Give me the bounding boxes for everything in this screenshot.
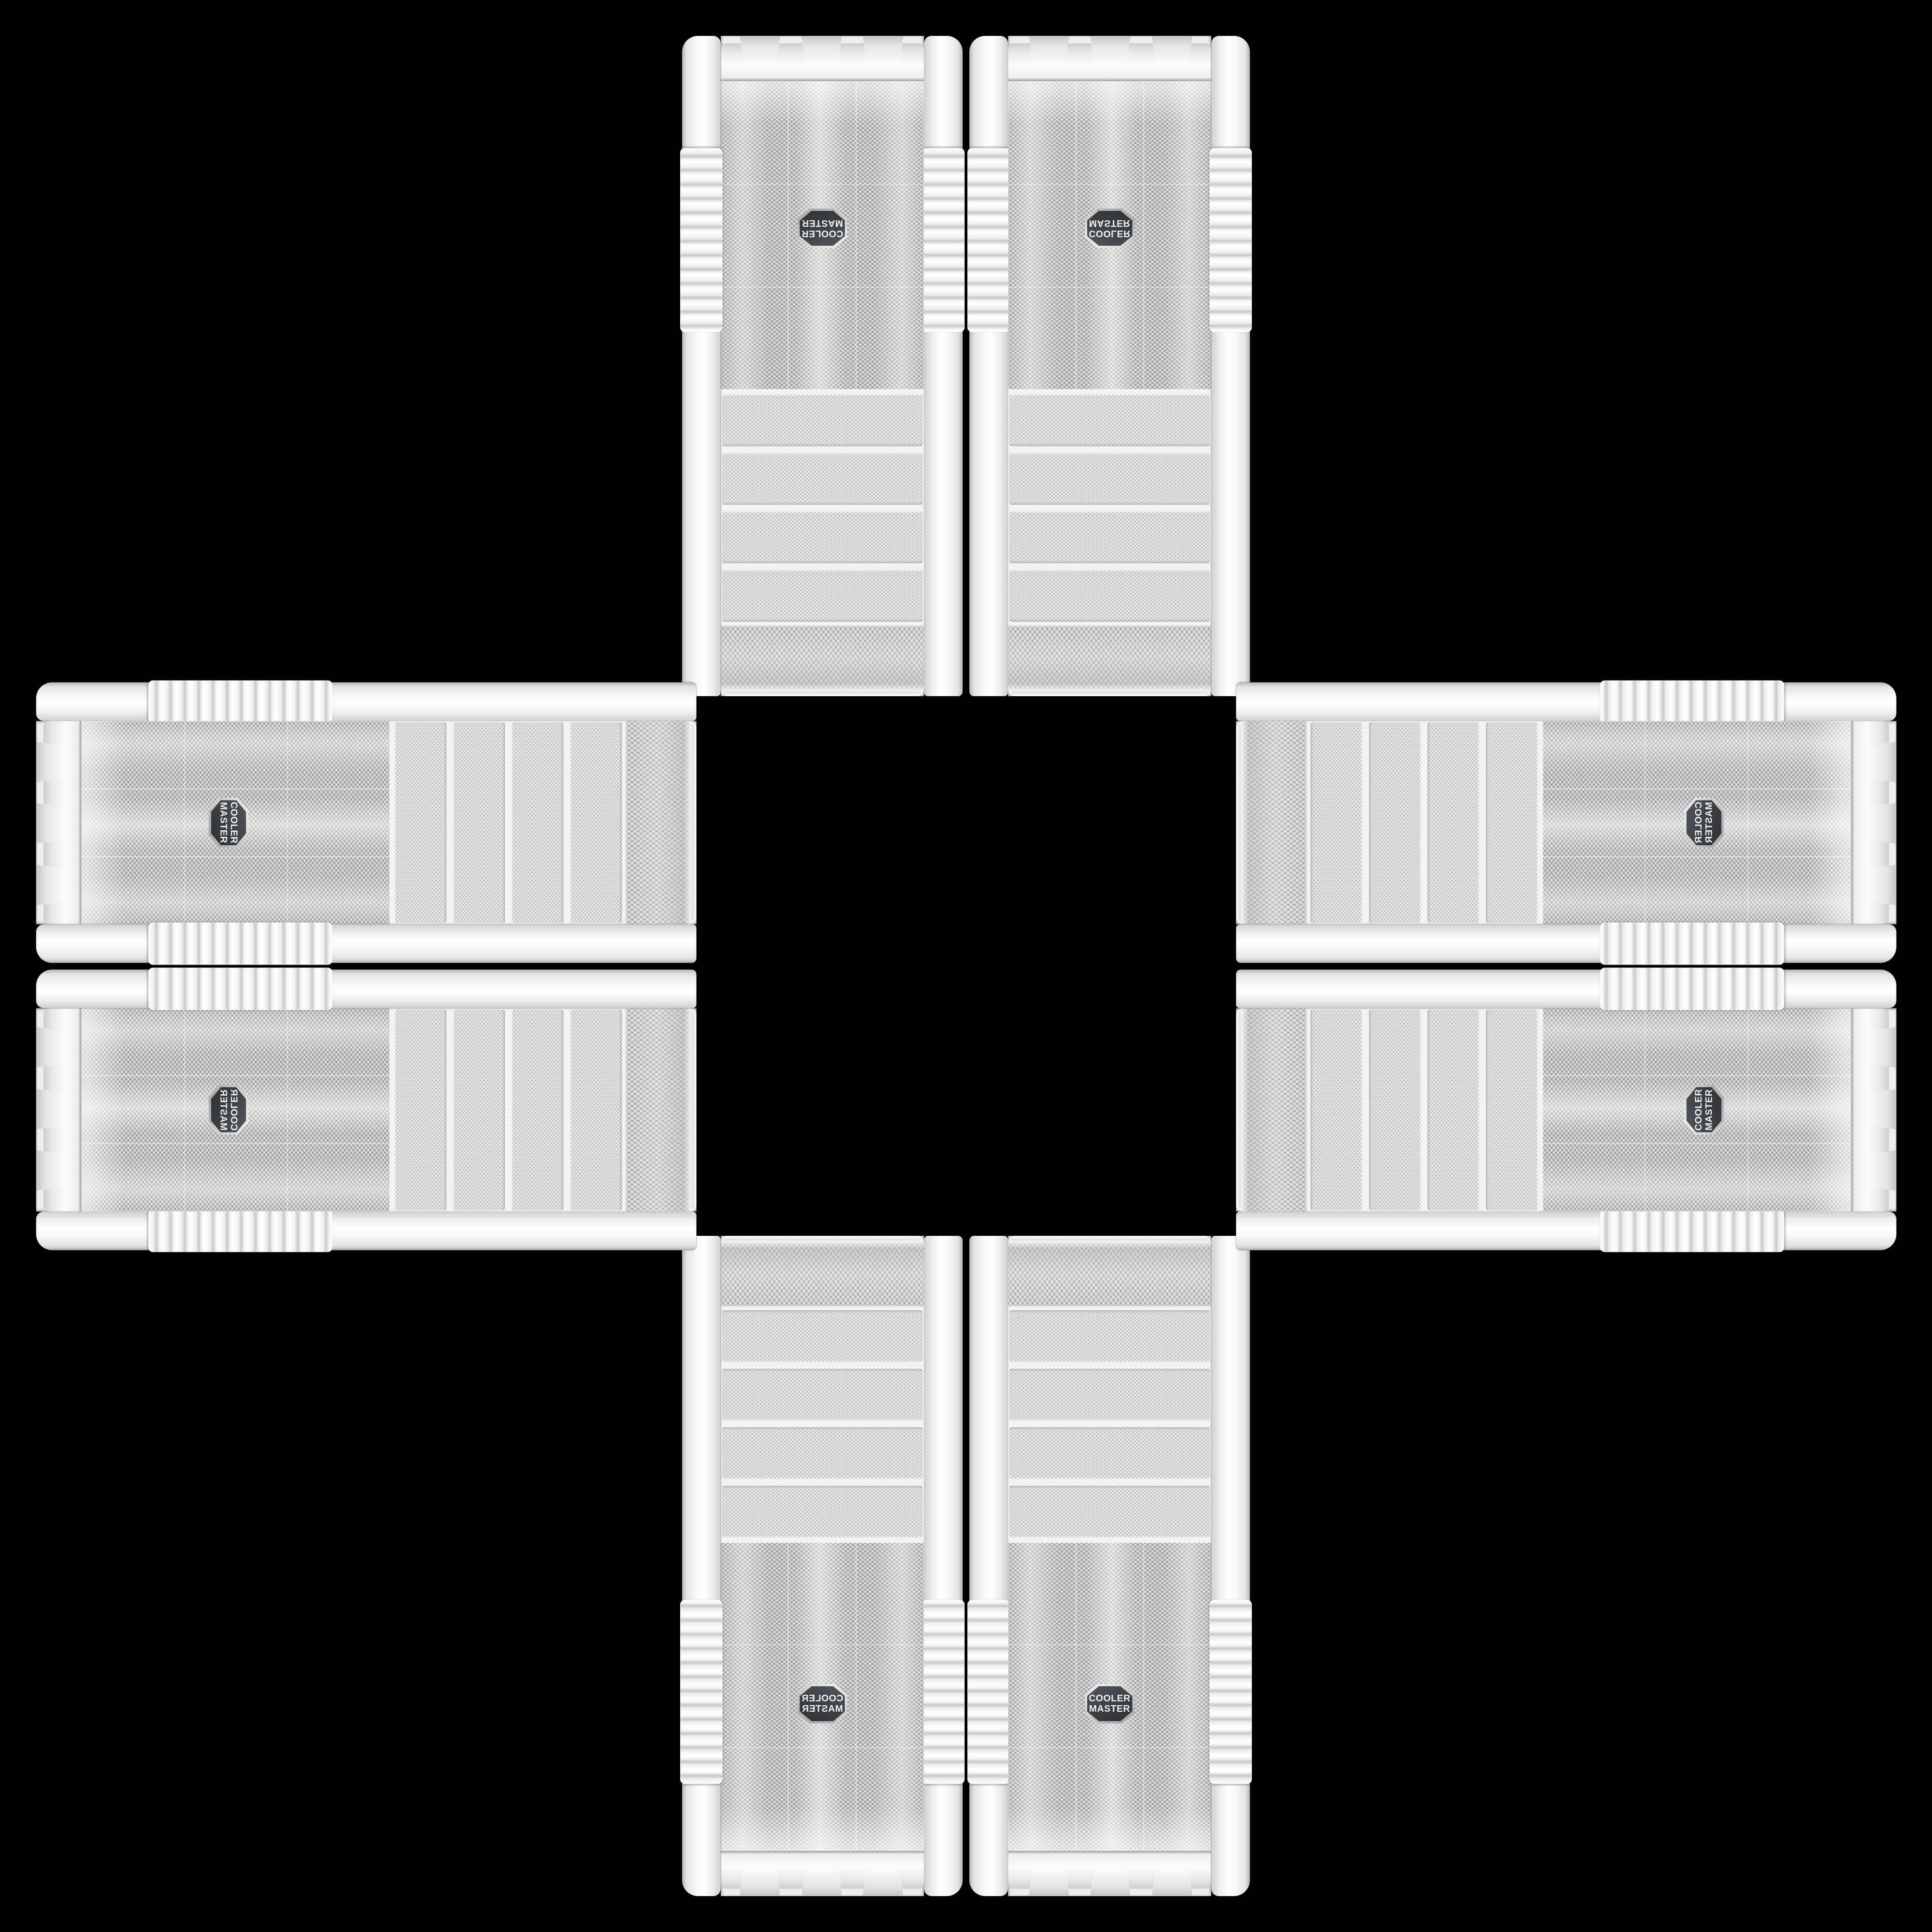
- drive-bay-strip: [452, 1009, 505, 1210]
- case-front-panel-bottom-left: COOLER MASTER: [682, 1236, 963, 1896]
- grip-ribs-left: [967, 148, 1010, 332]
- side-rail-right: [1211, 36, 1250, 696]
- side-rail-left: [1236, 682, 1896, 721]
- mesh-roll-edge: [1008, 626, 1211, 696]
- grip-ribs-right: [680, 148, 723, 332]
- badge-text-line2: MASTER: [218, 1089, 228, 1130]
- cooler-master-badge: COOLER MASTER: [1684, 798, 1724, 848]
- foot-tab: [1869, 741, 1896, 782]
- drive-bay-strip: [1009, 452, 1210, 505]
- side-rail-right: [1236, 924, 1896, 963]
- badge-text-line2: MASTER: [1704, 1089, 1714, 1130]
- cooler-master-badge: COOLER MASTER: [798, 1684, 848, 1724]
- cooler-master-badge-face: COOLER MASTER: [211, 800, 246, 845]
- mesh-roll-edge: [1236, 1008, 1306, 1211]
- front-bezel: COOLER MASTER: [1236, 1008, 1896, 1211]
- mesh-roll-edge: [626, 721, 696, 924]
- badge-text-line1: COOLER: [229, 801, 239, 843]
- cooler-master-badge-face: COOLER MASTER: [800, 211, 845, 246]
- main-mesh-area: COOLER MASTER: [721, 1543, 924, 1851]
- grip-ribs-right: [1209, 1600, 1252, 1784]
- front-bezel: COOLER MASTER: [721, 1236, 924, 1896]
- grip-ribs-right: [680, 1600, 723, 1784]
- front-bezel: COOLER MASTER: [36, 1008, 696, 1211]
- badge-text-line1: COOLER: [1089, 1694, 1131, 1704]
- drive-bay-strip: [722, 1310, 923, 1363]
- drive-bay-strip: [722, 1486, 923, 1538]
- case-front-panel-left-bottom: COOLER MASTER: [36, 969, 696, 1250]
- side-rail-left: [1236, 1211, 1896, 1250]
- foot-tab: [36, 741, 63, 782]
- drive-bay-strip: [569, 1009, 622, 1210]
- grip-ribs-right: [148, 967, 332, 1010]
- mesh-roll-edge: [1236, 721, 1306, 924]
- drive-bay-strip: [452, 722, 505, 923]
- grip-ribs-left: [148, 1209, 332, 1252]
- drive-bay-strip: [1009, 511, 1210, 563]
- drive-bay-strip: [511, 1009, 563, 1210]
- outer-cap: [1008, 36, 1211, 81]
- foot-tab: [36, 1150, 63, 1191]
- side-rail-right: [682, 36, 721, 696]
- drive-bay-section: [721, 389, 924, 626]
- front-bezel: COOLER MASTER: [721, 36, 924, 696]
- case-front-panel-right-bottom: COOLER MASTER: [1236, 969, 1896, 1250]
- badge-text-line2: MASTER: [218, 802, 228, 843]
- foot-tab: [740, 1869, 780, 1896]
- outer-cap: [721, 36, 924, 81]
- front-bezel: COOLER MASTER: [1008, 1236, 1211, 1896]
- cooler-master-badge-face: COOLER MASTER: [1686, 800, 1721, 845]
- cooler-master-badge-face: COOLER MASTER: [1087, 211, 1133, 246]
- side-rail-left: [924, 36, 963, 696]
- cooler-master-badge-face: COOLER MASTER: [1686, 1087, 1721, 1133]
- drive-bay-strip: [1369, 722, 1421, 923]
- drive-bay-strip: [1427, 722, 1480, 923]
- main-mesh-area: COOLER MASTER: [1008, 81, 1211, 389]
- cooler-master-badge-face: COOLER MASTER: [211, 1087, 246, 1133]
- grip-ribs-left: [922, 148, 965, 332]
- drive-bay-strip: [722, 1427, 923, 1480]
- foot-tab: [1090, 1869, 1131, 1896]
- drive-bay-strip: [569, 722, 622, 923]
- cooler-master-badge: COOLER MASTER: [1085, 208, 1135, 248]
- drive-bay-strip: [722, 569, 923, 622]
- drive-bay-strip: [1009, 1427, 1210, 1480]
- drive-bay-strip: [722, 452, 923, 505]
- grip-ribs-left: [1600, 680, 1784, 723]
- drive-bay-strip: [394, 722, 446, 923]
- side-rail-right: [682, 1236, 721, 1896]
- drive-bay-strip: [1369, 1009, 1421, 1210]
- foot-tab: [740, 36, 780, 63]
- foot-tab: [801, 1869, 842, 1896]
- mesh-roll-edge: [721, 626, 924, 696]
- outer-cap: [1851, 1008, 1896, 1211]
- cooler-master-badge-face: COOLER MASTER: [800, 1686, 845, 1721]
- foot-tab: [863, 36, 903, 63]
- main-mesh-area: COOLER MASTER: [1543, 1008, 1851, 1211]
- foot-tab: [1152, 1869, 1192, 1896]
- cooler-master-badge: COOLER MASTER: [208, 798, 248, 848]
- cooler-master-badge: COOLER MASTER: [1085, 1684, 1135, 1724]
- drive-bay-section: [1306, 1008, 1543, 1211]
- case-front-panel-left-top: COOLER MASTER: [36, 682, 696, 963]
- case-front-panel-right-top: COOLER MASTER: [1236, 682, 1896, 963]
- mesh-roll-edge: [626, 1008, 696, 1211]
- side-rail-right: [36, 969, 696, 1008]
- badge-text-line1: COOLER: [1694, 801, 1704, 843]
- grip-ribs-right: [1600, 922, 1784, 965]
- side-rail-left: [36, 1211, 696, 1250]
- drive-bay-strip: [1310, 1009, 1363, 1210]
- badge-text-line1: COOLER: [1694, 1089, 1704, 1131]
- foot-tab: [1869, 803, 1896, 843]
- foot-tab: [1869, 1027, 1896, 1067]
- side-rail-right: [36, 924, 696, 963]
- drive-bay-strip: [722, 511, 923, 563]
- drive-bay-strip: [1310, 722, 1363, 923]
- drive-bay-section: [1008, 389, 1211, 626]
- drive-bay-section: [721, 1306, 924, 1543]
- foot-tab: [1152, 36, 1192, 63]
- cooler-master-badge: COOLER MASTER: [208, 1085, 248, 1135]
- case-front-panel-top-right: COOLER MASTER: [969, 36, 1250, 696]
- badge-text-line2: MASTER: [802, 1704, 843, 1714]
- drive-bay-strip: [1427, 1009, 1480, 1210]
- badge-text-line1: COOLER: [1089, 229, 1131, 239]
- badge-text-line2: MASTER: [1704, 802, 1714, 843]
- drive-bay-strip: [1009, 394, 1210, 446]
- grip-ribs-left: [967, 1600, 1010, 1784]
- case-front-panel-top-left: COOLER MASTER: [682, 36, 963, 696]
- main-mesh-area: COOLER MASTER: [721, 81, 924, 389]
- badge-text-line2: MASTER: [802, 218, 843, 228]
- drive-bay-strip: [1486, 1009, 1538, 1210]
- mesh-roll-edge: [1008, 1236, 1211, 1306]
- outer-cap: [1008, 1851, 1211, 1896]
- drive-bay-strip: [1009, 569, 1210, 622]
- foot-tab: [36, 1027, 63, 1067]
- foot-tab: [1869, 1089, 1896, 1129]
- grip-ribs-left: [922, 1600, 965, 1784]
- main-mesh-area: COOLER MASTER: [81, 721, 389, 924]
- outer-cap: [721, 1851, 924, 1896]
- main-mesh-area: COOLER MASTER: [1543, 721, 1851, 924]
- drive-bay-section: [389, 721, 626, 924]
- photo-collage-stage: COOLER MASTER: [0, 0, 1932, 1932]
- front-bezel: COOLER MASTER: [1236, 721, 1896, 924]
- foot-tab: [1869, 865, 1896, 905]
- outer-cap: [1851, 721, 1896, 924]
- drive-bay-section: [1008, 1306, 1211, 1543]
- badge-text-line1: COOLER: [801, 229, 843, 239]
- drive-bay-strip: [722, 1369, 923, 1421]
- badge-text-line1: COOLER: [229, 1089, 239, 1131]
- side-rail-left: [969, 36, 1008, 696]
- drive-bay-strip: [1009, 1486, 1210, 1538]
- front-bezel: COOLER MASTER: [1008, 36, 1211, 696]
- badge-text-line2: MASTER: [1089, 218, 1130, 228]
- foot-tab: [801, 36, 842, 63]
- drive-bay-strip: [511, 722, 563, 923]
- cooler-master-badge: COOLER MASTER: [798, 208, 848, 248]
- drive-bay-section: [389, 1008, 626, 1211]
- foot-tab: [36, 1089, 63, 1129]
- cooler-master-badge: COOLER MASTER: [1684, 1085, 1724, 1135]
- badge-text-line1: COOLER: [801, 1694, 843, 1704]
- cooler-master-badge-face: COOLER MASTER: [1087, 1686, 1133, 1721]
- grip-ribs-left: [148, 680, 332, 723]
- mesh-roll-edge: [721, 1236, 924, 1306]
- foot-tab: [863, 1869, 903, 1896]
- foot-tab: [36, 803, 63, 843]
- side-rail-left: [924, 1236, 963, 1896]
- drive-bay-strip: [1486, 722, 1538, 923]
- drive-bay-strip: [722, 394, 923, 446]
- drive-bay-section: [1306, 721, 1543, 924]
- outer-cap: [36, 1008, 81, 1211]
- side-rail-left: [969, 1236, 1008, 1896]
- side-rail-right: [1236, 969, 1896, 1008]
- main-mesh-area: COOLER MASTER: [1008, 1543, 1211, 1851]
- case-front-panel-bottom-right: COOLER MASTER: [969, 1236, 1250, 1896]
- foot-tab: [36, 865, 63, 905]
- grip-ribs-left: [1600, 1209, 1784, 1252]
- grip-ribs-right: [1209, 148, 1252, 332]
- badge-text-line2: MASTER: [1089, 1704, 1130, 1714]
- side-rail-left: [36, 682, 696, 721]
- drive-bay-strip: [1009, 1369, 1210, 1421]
- front-bezel: COOLER MASTER: [36, 721, 696, 924]
- outer-cap: [36, 721, 81, 924]
- foot-tab: [1029, 36, 1069, 63]
- grip-ribs-right: [148, 922, 332, 965]
- grip-ribs-right: [1600, 967, 1784, 1010]
- foot-tab: [1029, 1869, 1069, 1896]
- drive-bay-strip: [1009, 1310, 1210, 1363]
- foot-tab: [1869, 1150, 1896, 1191]
- side-rail-right: [1211, 1236, 1250, 1896]
- main-mesh-area: COOLER MASTER: [81, 1008, 389, 1211]
- drive-bay-strip: [394, 1009, 446, 1210]
- foot-tab: [1090, 36, 1131, 63]
